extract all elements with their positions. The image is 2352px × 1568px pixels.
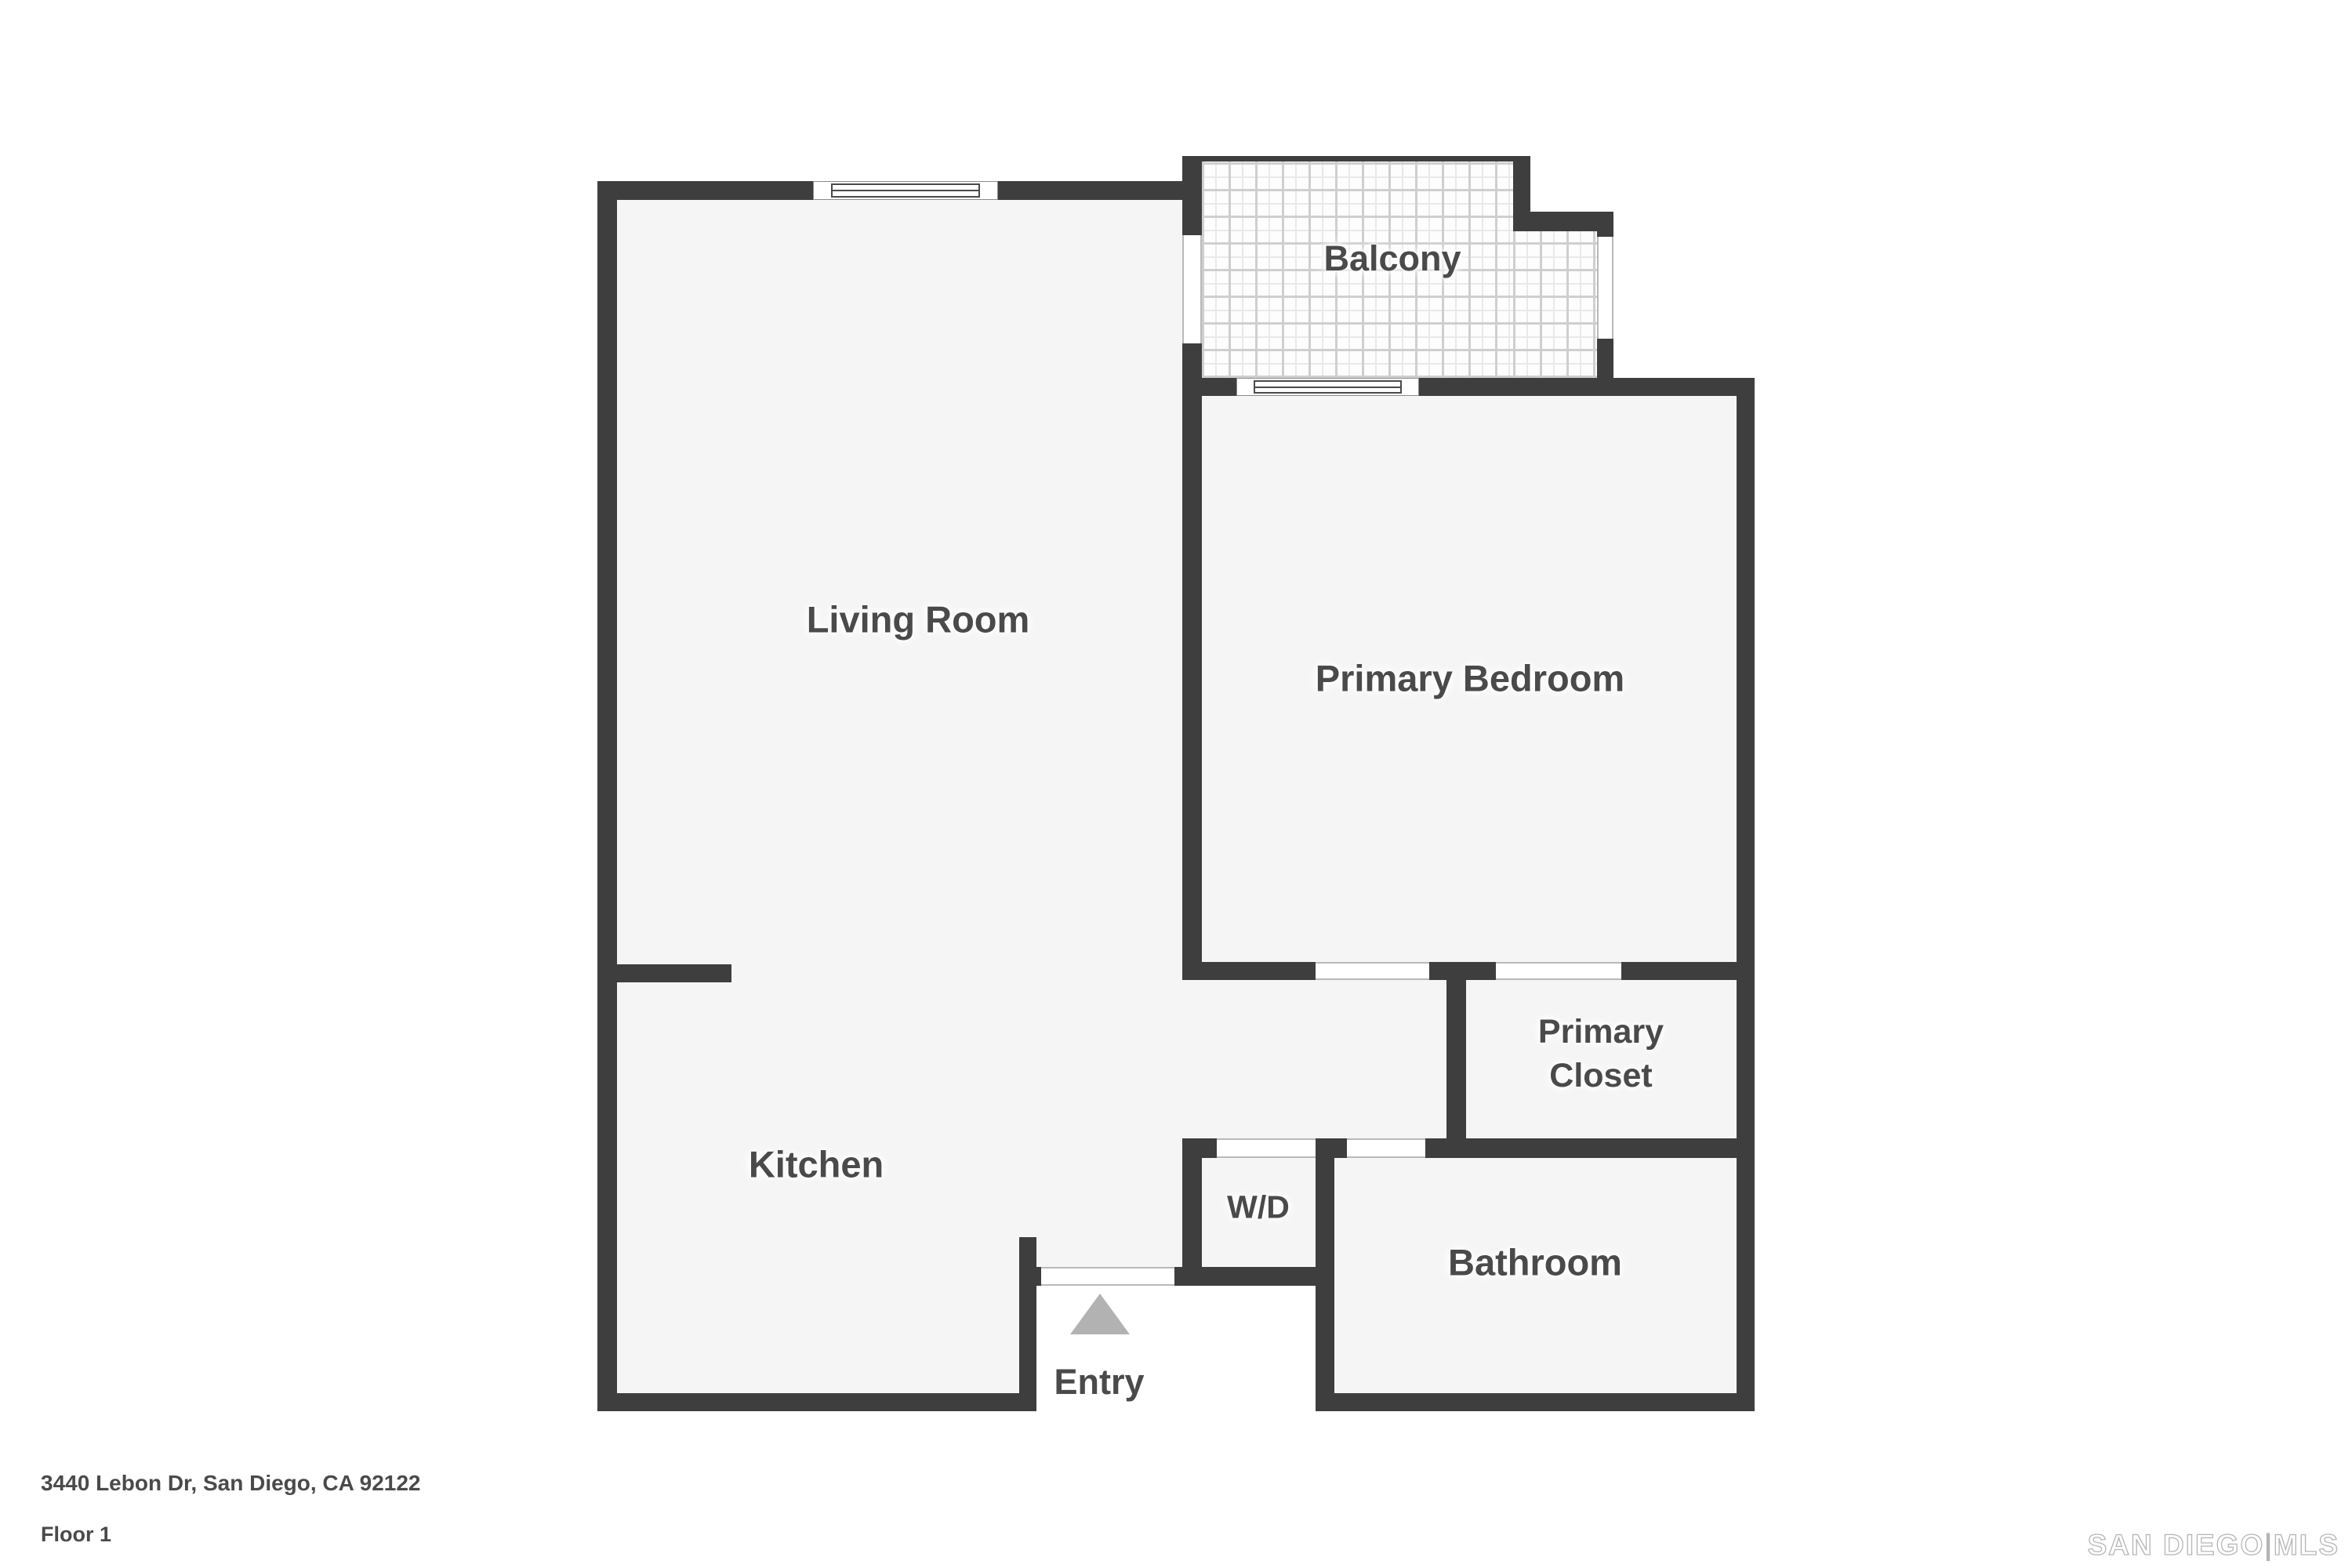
door-opening-closet: [1496, 962, 1621, 980]
mls-watermark-suffix: MLS: [2274, 1529, 2339, 1561]
label-living-room: Living Room: [807, 595, 1030, 643]
label-balcony: Balcony: [1323, 236, 1461, 282]
room-floor-hall-column: [1031, 192, 1192, 1278]
wall-hallway-south-3: [1425, 1138, 1755, 1158]
balcony-rail: [1190, 156, 1530, 162]
mls-watermark: SAN DIEGO|MLS: [2088, 1529, 2339, 1562]
wall-top-left-segment: [597, 181, 813, 200]
wall-wd-bottom: [1174, 1267, 1329, 1286]
label-kitchen: Kitchen: [749, 1140, 884, 1188]
wall-living-bedroom-divider: [1182, 396, 1202, 980]
wall-divider-upper: [1182, 156, 1202, 235]
window-pane: [831, 183, 980, 198]
floorplan-canvas: Living Room Balcony Primary Bedroom Kitc…: [0, 0, 2352, 1568]
label-primary-bedroom: Primary Bedroom: [1316, 654, 1624, 702]
label-primary-closet-line2: Closet: [1538, 1054, 1664, 1098]
balcony-notch-wall-vertical: [1513, 156, 1530, 231]
label-bathroom: Bathroom: [1448, 1238, 1622, 1286]
wall-exterior-right: [1737, 378, 1755, 1411]
mls-watermark-brand: SAN DIEGO: [2088, 1529, 2265, 1561]
label-primary-closet: Primary Closet: [1538, 1011, 1664, 1098]
door-opening-bathroom: [1347, 1138, 1425, 1158]
wall-exterior-left: [597, 181, 617, 1411]
balcony-right-wall-upper: [1597, 212, 1613, 237]
wall-wd-left: [1182, 1138, 1202, 1284]
entry-arrow-icon: [1070, 1294, 1130, 1334]
wall-bottom-kitchen: [597, 1393, 1036, 1411]
room-floor-living-kitchen: [608, 192, 1031, 1403]
window-opening-balcony-right: [1597, 237, 1613, 339]
wall-bedroom-top-left: [1202, 378, 1236, 396]
wall-kitchen-living-stub: [597, 964, 731, 982]
wall-bedroom-bottom-3: [1621, 962, 1755, 980]
wall-closet-left: [1446, 980, 1466, 1138]
window-symbol-living-room: [813, 181, 998, 200]
property-address: 3440 Lebon Dr, San Diego, CA 92122: [41, 1471, 420, 1496]
floor-number: Floor 1: [41, 1523, 111, 1547]
window-pane: [1254, 380, 1402, 394]
door-opening-balcony-access: [1182, 235, 1202, 343]
wall-bottom-bathroom: [1316, 1393, 1755, 1411]
wall-top-right-segment: [998, 181, 1202, 200]
wall-kitchen-stub-vertical: [1019, 1237, 1036, 1411]
room-floor-hallway: [1182, 972, 1457, 1146]
label-entry: Entry: [1054, 1359, 1144, 1406]
label-primary-closet-line1: Primary: [1538, 1011, 1664, 1054]
door-opening-wd: [1217, 1138, 1316, 1158]
door-opening-bedroom: [1316, 962, 1429, 980]
wall-bedroom-bottom-2: [1429, 962, 1496, 980]
balcony-tile-floor-notch: [1513, 231, 1597, 378]
wall-divider-mid: [1182, 343, 1202, 396]
mls-watermark-separator: |: [2264, 1529, 2274, 1561]
window-symbol-bedroom-balcony: [1236, 378, 1419, 396]
wall-bedroom-bottom-1: [1182, 962, 1316, 980]
door-opening-entry: [1041, 1267, 1174, 1286]
wall-bedroom-top-right: [1419, 378, 1755, 396]
label-washer-dryer: W/D: [1227, 1186, 1290, 1228]
